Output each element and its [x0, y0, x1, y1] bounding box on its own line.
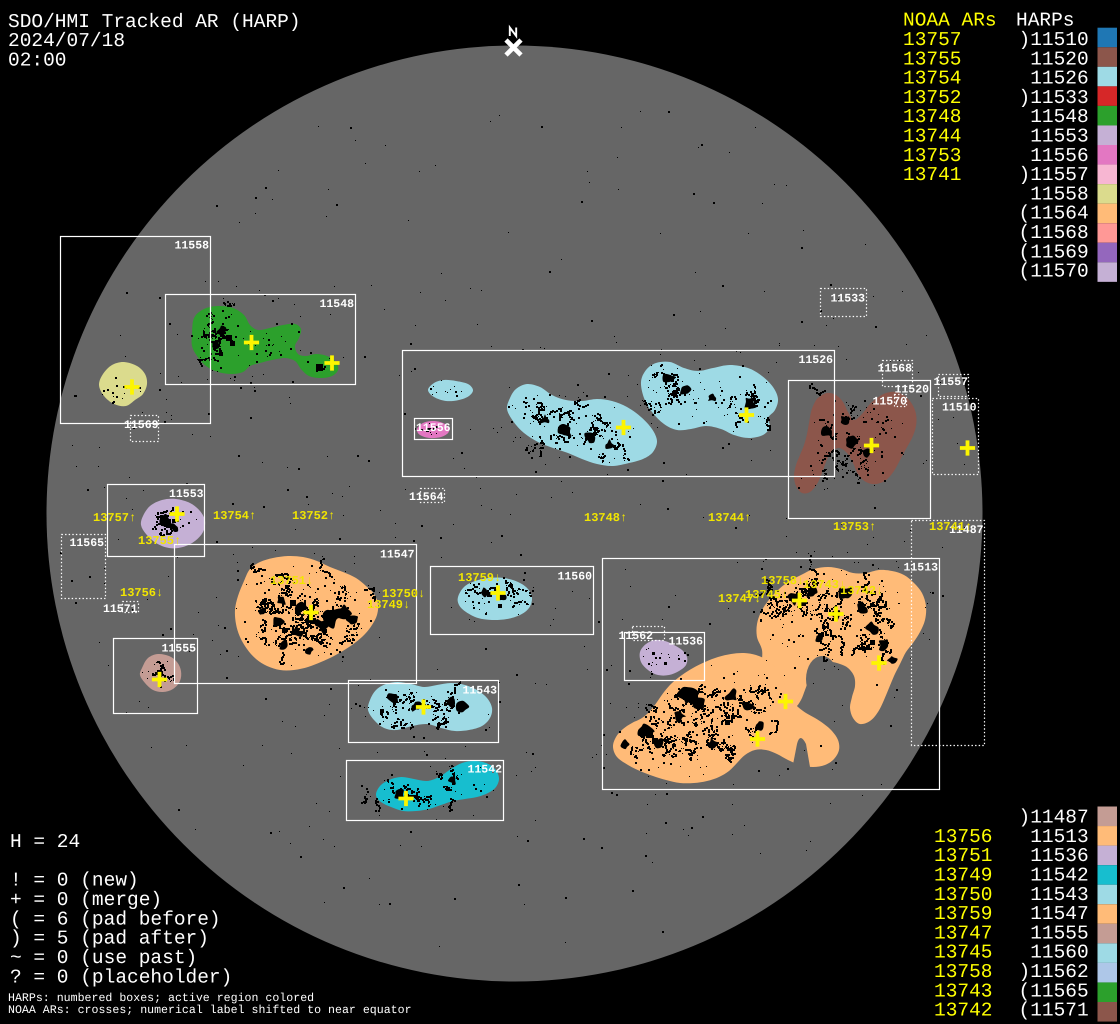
svg-text:(11570: (11570 — [1019, 261, 1089, 283]
svg-text:NOAA ARs: crosses; numerical l: NOAA ARs: crosses; numerical label shift… — [8, 1004, 412, 1017]
svg-text:13755↑: 13755↑ — [138, 534, 181, 548]
svg-text:13749↓: 13749↓ — [367, 598, 410, 612]
svg-text:11565: 11565 — [70, 537, 105, 550]
svg-text:11547: 11547 — [380, 548, 415, 561]
svg-text:H = 24: H = 24 — [10, 831, 80, 853]
svg-text:11543: 11543 — [463, 684, 498, 697]
svg-text:13756↓: 13756↓ — [120, 586, 163, 600]
svg-text:11536: 11536 — [669, 635, 704, 648]
svg-text:13758↓: 13758↓ — [761, 574, 804, 588]
svg-text:13751↓: 13751↓ — [270, 574, 313, 588]
svg-text:02:00: 02:00 — [8, 49, 67, 71]
svg-text:? = 0 (placeholder): ? = 0 (placeholder) — [10, 967, 232, 989]
svg-text:11558: 11558 — [175, 239, 210, 252]
svg-text:11571: 11571 — [103, 603, 138, 616]
svg-text:11542: 11542 — [468, 763, 503, 776]
svg-text:11553: 11553 — [169, 488, 204, 501]
svg-text:13754↑: 13754↑ — [213, 509, 256, 523]
svg-text:11564: 11564 — [409, 491, 444, 504]
svg-text:13748↑: 13748↑ — [584, 511, 627, 525]
svg-text:11526: 11526 — [799, 354, 834, 367]
svg-text:11569: 11569 — [124, 419, 159, 432]
svg-text:13745↓: 13745↓ — [745, 588, 788, 602]
svg-text:11562: 11562 — [619, 630, 654, 643]
svg-text:13757↑: 13757↑ — [93, 511, 136, 525]
svg-text:13741: 13741 — [903, 164, 962, 186]
svg-text:11570: 11570 — [873, 396, 908, 409]
svg-text:11560: 11560 — [558, 570, 593, 583]
svg-text:13742↓: 13742↓ — [840, 584, 883, 598]
svg-text:13759↓: 13759↓ — [458, 571, 501, 585]
svg-text:13741↑: 13741↑ — [929, 520, 972, 534]
svg-text:11520: 11520 — [895, 383, 930, 396]
svg-text:11568: 11568 — [878, 363, 913, 376]
svg-text:11555: 11555 — [162, 642, 197, 655]
svg-text:11533: 11533 — [831, 292, 866, 305]
svg-text:11556: 11556 — [416, 422, 451, 435]
svg-text:11513: 11513 — [904, 561, 939, 574]
svg-text:11548: 11548 — [320, 298, 355, 311]
svg-text:11510: 11510 — [942, 401, 977, 414]
svg-text:11557: 11557 — [934, 376, 969, 389]
svg-text:13742: 13742 — [934, 1000, 993, 1022]
svg-text:13752↑: 13752↑ — [292, 509, 335, 523]
svg-text:13753↑: 13753↑ — [833, 520, 876, 534]
svg-text:13744↑: 13744↑ — [708, 511, 751, 525]
svg-text:(11571: (11571 — [1019, 1000, 1089, 1022]
